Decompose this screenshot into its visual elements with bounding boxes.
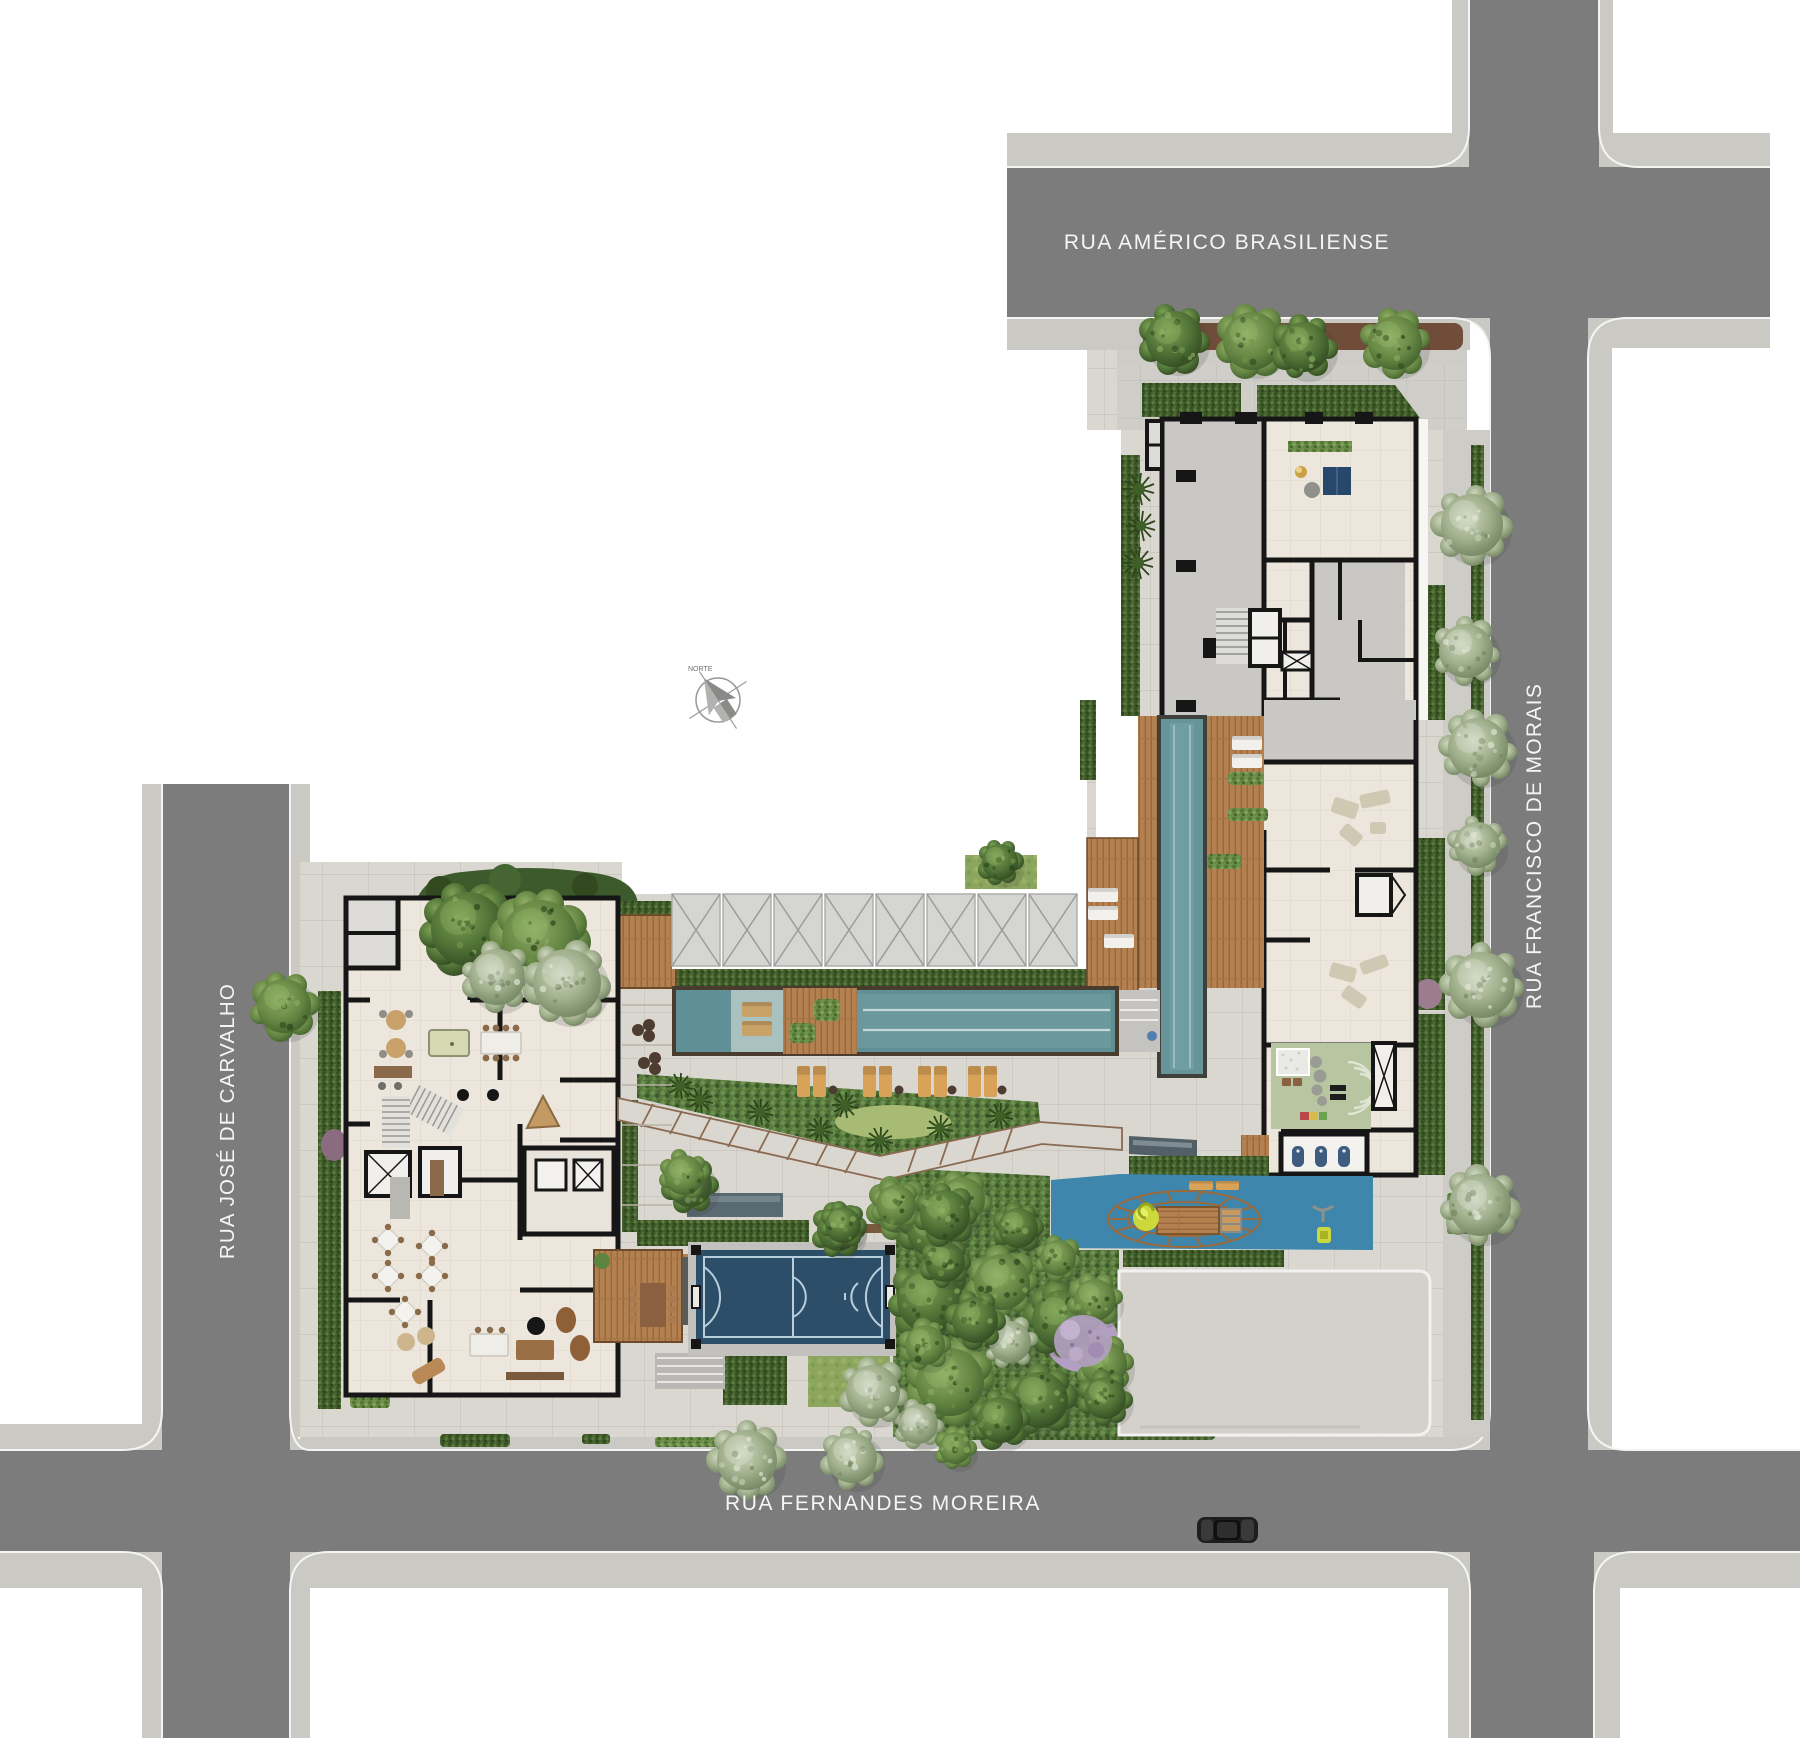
- svg-text:RUA FRANCISCO DE MORAIS: RUA FRANCISCO DE MORAIS: [1523, 683, 1546, 1009]
- svg-text:RUA FERNANDES MOREIRA: RUA FERNANDES MOREIRA: [725, 1492, 1041, 1515]
- svg-text:RUA AMÉRICO BRASILIENSE: RUA AMÉRICO BRASILIENSE: [1064, 231, 1390, 254]
- svg-text:RUA JOSÉ DE CARVALHO: RUA JOSÉ DE CARVALHO: [216, 983, 239, 1259]
- svg-text:NORTE: NORTE: [688, 666, 713, 673]
